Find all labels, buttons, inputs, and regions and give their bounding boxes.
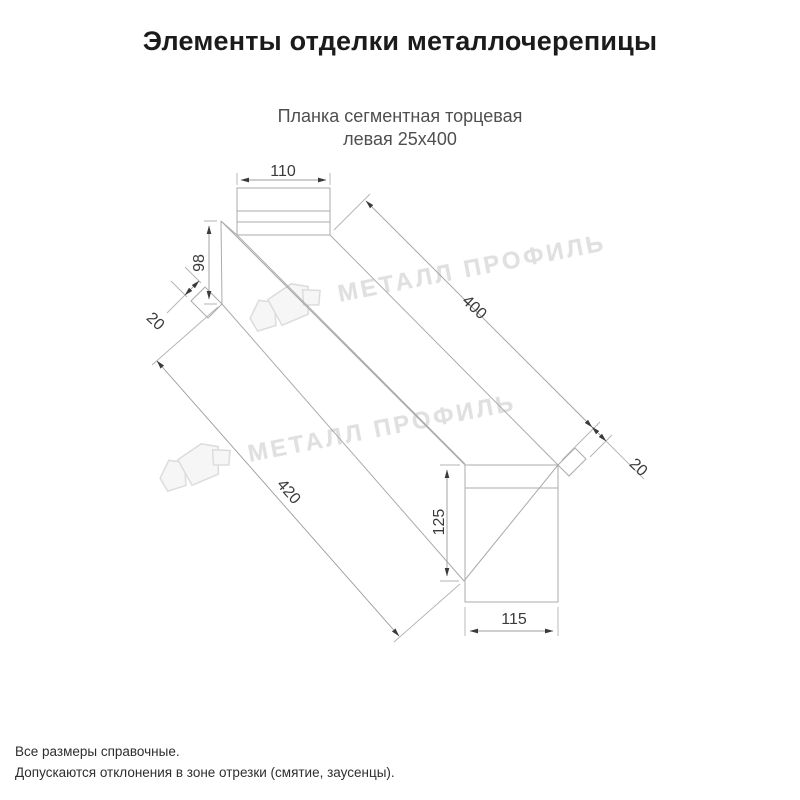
footnotes: Все размеры справочные. Допускаются откл… — [15, 741, 395, 783]
dimension-label-left-height: 98 — [191, 254, 208, 272]
dim-line-20-left — [185, 281, 199, 295]
technical-drawing: 110 98 20 400 20 420 125 115 — [0, 0, 800, 800]
dim-line-420 — [157, 361, 399, 636]
flange-face — [237, 188, 330, 235]
dim-line-20-right — [592, 427, 606, 441]
dimension-lines — [157, 180, 606, 636]
right-hem-flap — [558, 448, 586, 476]
end-face-diagonal — [464, 465, 558, 581]
dimension-label-right-hem: 20 — [626, 455, 651, 480]
dimension-label-top-width: 110 — [270, 163, 296, 180]
extension-lines — [152, 173, 644, 642]
dimension-label-end-width: 115 — [501, 611, 527, 628]
note-line1: Все размеры справочные. — [15, 741, 395, 762]
drawing-page: Элементы отделки металлочерепицы Планка … — [0, 0, 800, 800]
dimension-label-left-hem: 20 — [143, 309, 168, 334]
left-hem-flap — [191, 287, 222, 318]
dimension-label-end-height: 125 — [431, 509, 448, 536]
dimension-label-length-bottom: 420 — [273, 476, 303, 507]
left-end-edge — [221, 221, 237, 304]
note-line2: Допускаются отклонения в зоне отрезки (с… — [15, 762, 395, 783]
dimension-label-length-top: 400 — [459, 292, 490, 323]
part-outline — [191, 188, 586, 602]
end-face — [465, 465, 558, 602]
